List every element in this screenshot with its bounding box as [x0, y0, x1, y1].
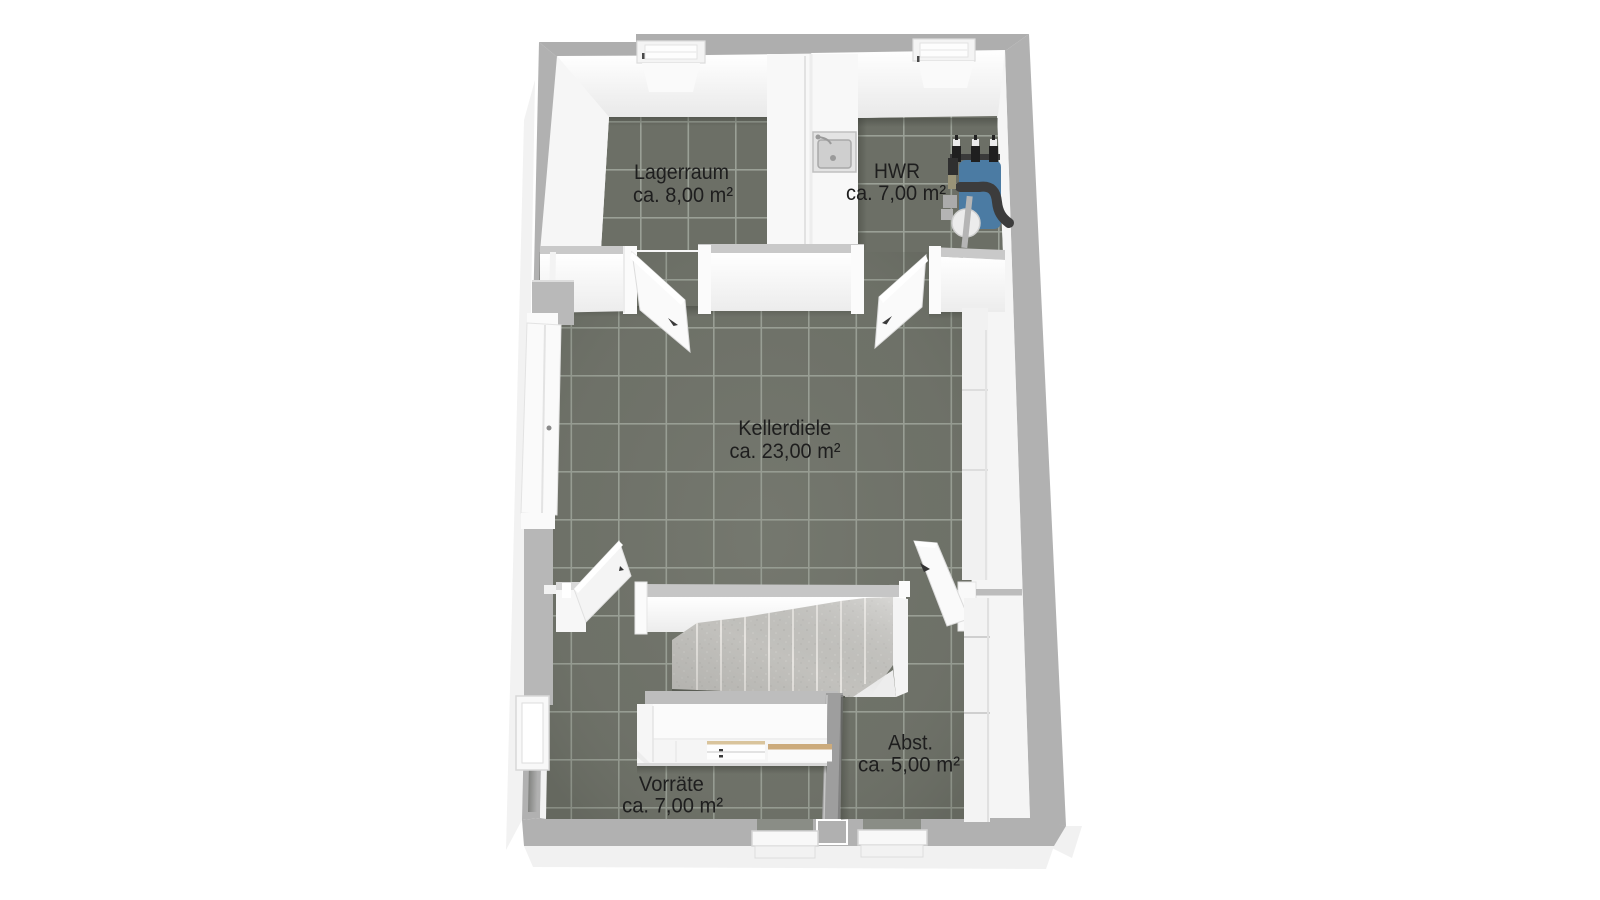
svg-text:HWR: HWR [874, 160, 920, 183]
svg-text:Lagerraum: Lagerraum [634, 161, 729, 184]
svg-text:ca. 23,00 m²: ca. 23,00 m² [730, 440, 841, 463]
svg-text:ca. 8,00 m²: ca. 8,00 m² [633, 184, 733, 207]
svg-text:ca. 7,00 m²: ca. 7,00 m² [622, 795, 723, 818]
svg-text:Vorräte: Vorräte [639, 773, 704, 796]
svg-text:Abst.: Abst. [888, 732, 933, 755]
svg-text:ca. 5,00 m²: ca. 5,00 m² [858, 754, 960, 777]
svg-text:ca. 7,00 m²: ca. 7,00 m² [846, 182, 946, 205]
svg-text:Kellerdiele: Kellerdiele [738, 417, 831, 440]
